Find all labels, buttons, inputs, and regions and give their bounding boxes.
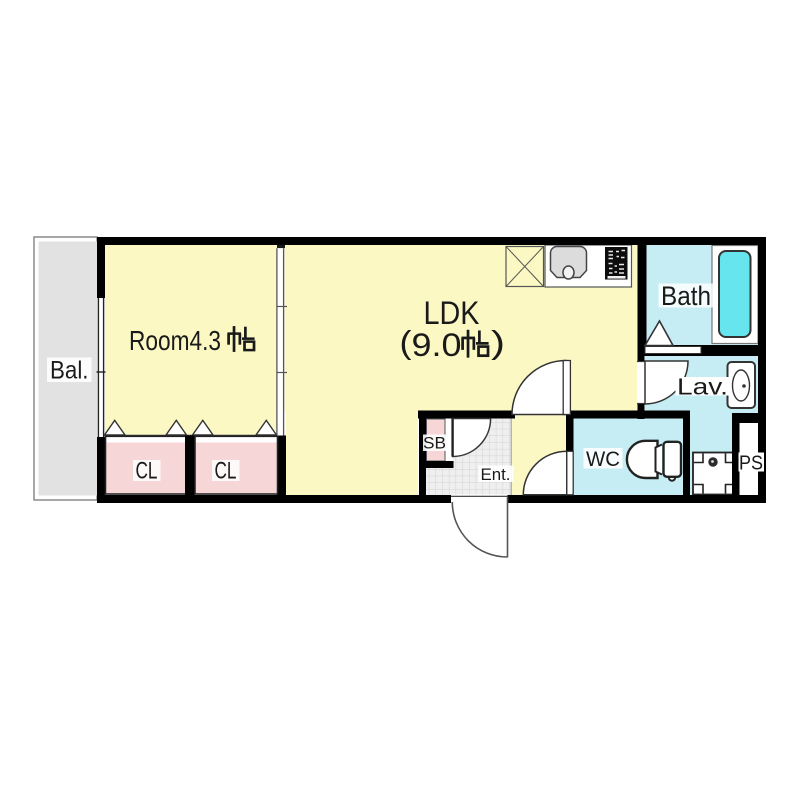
svg-text:WC: WC [586,448,620,471]
svg-text:PS: PS [739,452,763,474]
svg-text:): ) [491,325,505,361]
svg-text:Bath: Bath [661,281,711,311]
svg-text:CL: CL [215,458,237,485]
svg-text:SB: SB [423,435,446,453]
svg-text:CL: CL [136,458,158,485]
svg-text:Room4.3: Room4.3 [129,325,221,356]
svg-text:(: ( [400,325,412,361]
svg-text:9.0: 9.0 [412,327,462,363]
svg-text:Bal.: Bal. [50,357,89,385]
svg-text:Ent.: Ent. [481,466,511,484]
svg-text:Lav.: Lav. [677,373,728,399]
svg-text:LDK: LDK [424,295,480,331]
